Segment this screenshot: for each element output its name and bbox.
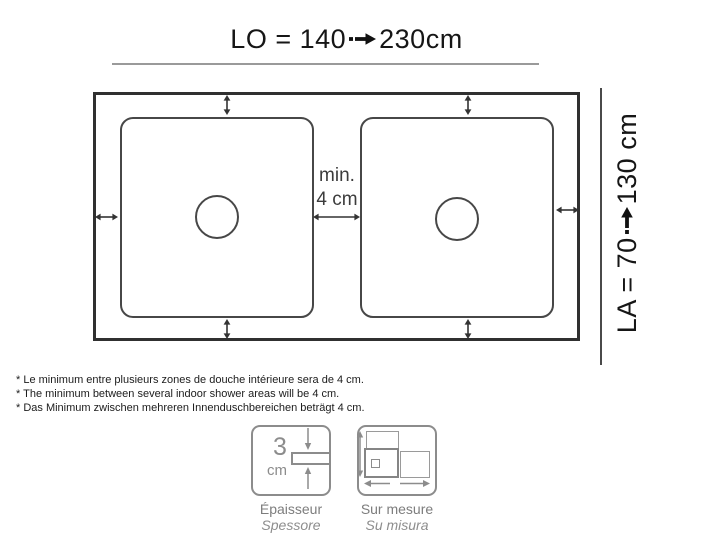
width-label-suffix: 130 cm: [612, 113, 642, 205]
custom-size-icon: [357, 425, 437, 496]
shower-tray-dimension-diagram: LO = 140 230cm min. 4 cm: [0, 0, 720, 540]
min-gap-line1: min.: [310, 164, 364, 188]
length-label-prefix: LO = 140: [230, 24, 346, 54]
min-gap-line2: 4 cm: [310, 188, 364, 212]
footnote-de: * Das Minimum zwischen mehreren Innendus…: [16, 401, 365, 415]
title-underline: [112, 63, 539, 65]
bottom-arrow-left-zone-icon: [221, 319, 233, 339]
custom-rect-top: [366, 431, 399, 449]
vertical-double-arrow-icon: [355, 431, 365, 477]
custom-size-label-fr: Sur mesure: [355, 501, 439, 517]
width-label-prefix: LA = 70: [612, 237, 642, 333]
drain-circle-right: [435, 197, 479, 241]
drain-circle-left: [195, 195, 239, 239]
thickness-value: 3: [273, 433, 287, 462]
custom-square-main: [364, 448, 399, 478]
right-arrow-outer-icon: [556, 205, 579, 215]
footnote-en: * The minimum between several indoor sho…: [16, 387, 365, 401]
thickness-unit: cm: [267, 462, 287, 479]
custom-size-label-it: Su misura: [355, 517, 439, 533]
thickness-icon: 3 cm: [251, 425, 331, 496]
footnotes: * Le minimum entre plusieurs zones de do…: [16, 373, 365, 415]
bottom-arrow-right-zone-icon: [462, 319, 474, 339]
custom-rect-right: [400, 451, 430, 478]
left-arrow-outer-icon: [95, 212, 118, 222]
slab-shape: [291, 452, 331, 465]
range-arrow-icon: [349, 32, 376, 46]
right-arrow-icon: [400, 479, 430, 488]
min-gap-label: min. 4 cm: [310, 164, 364, 212]
thickness-label-fr: Épaisseur: [249, 501, 333, 517]
down-arrow-icon: [303, 428, 313, 450]
thickness-label-it: Spessore: [249, 517, 333, 533]
min-gap-arrow-icon: [313, 212, 360, 222]
custom-square-drain: [371, 459, 380, 468]
length-label-suffix: 230cm: [379, 24, 463, 54]
footnote-fr: * Le minimum entre plusieurs zones de do…: [16, 373, 365, 387]
width-dimension-label: LA = 70 130 cm: [611, 98, 643, 348]
left-arrow-icon: [364, 479, 390, 488]
top-arrow-right-zone-icon: [462, 95, 474, 115]
length-dimension-label: LO = 140 230cm: [103, 24, 590, 55]
up-arrow-icon: [303, 467, 313, 489]
top-arrow-left-zone-icon: [221, 95, 233, 115]
range-arrow-icon: [620, 207, 634, 234]
width-reference-line: [600, 88, 602, 365]
